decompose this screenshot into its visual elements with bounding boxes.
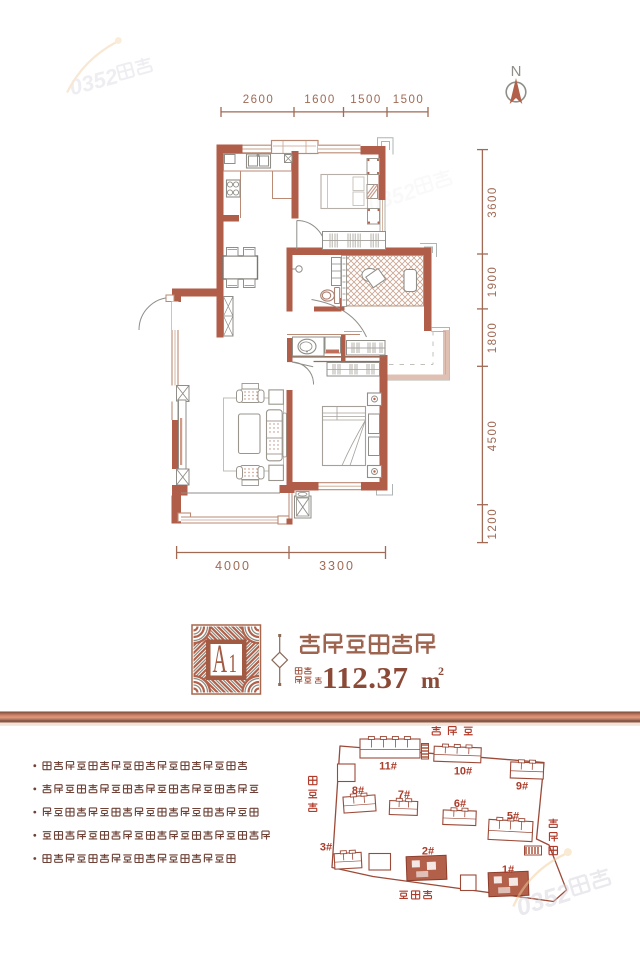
svg-text:2: 2 [438,664,444,678]
svg-text:4000: 4000 [215,559,251,573]
svg-text:1600: 1600 [304,94,336,106]
svg-text:11#: 11# [379,761,397,773]
svg-text:0352: 0352 [67,63,121,100]
svg-text:1#: 1# [502,864,514,876]
svg-text:6#: 6# [454,798,466,810]
svg-text:9#: 9# [516,781,528,793]
svg-text:1900: 1900 [487,266,499,298]
svg-text:1500: 1500 [393,94,425,106]
svg-text:8#: 8# [352,785,364,797]
svg-text:1500: 1500 [350,94,382,106]
svg-text:7#: 7# [398,789,410,801]
svg-text:3#: 3# [320,842,332,854]
svg-text:112.37: 112.37 [322,660,409,695]
svg-text:10#: 10# [454,766,472,778]
svg-text:4500: 4500 [487,420,499,452]
svg-text:N: N [511,63,522,80]
svg-text:1: 1 [229,649,238,678]
svg-text:2600: 2600 [243,94,275,106]
svg-text:3300: 3300 [319,559,355,573]
svg-text:1200: 1200 [487,508,499,540]
svg-text:1800: 1800 [487,322,499,354]
svg-text:5#: 5# [507,811,519,823]
svg-text:A: A [213,636,228,681]
svg-text:2#: 2# [422,846,434,858]
svg-text:3600: 3600 [487,186,499,218]
